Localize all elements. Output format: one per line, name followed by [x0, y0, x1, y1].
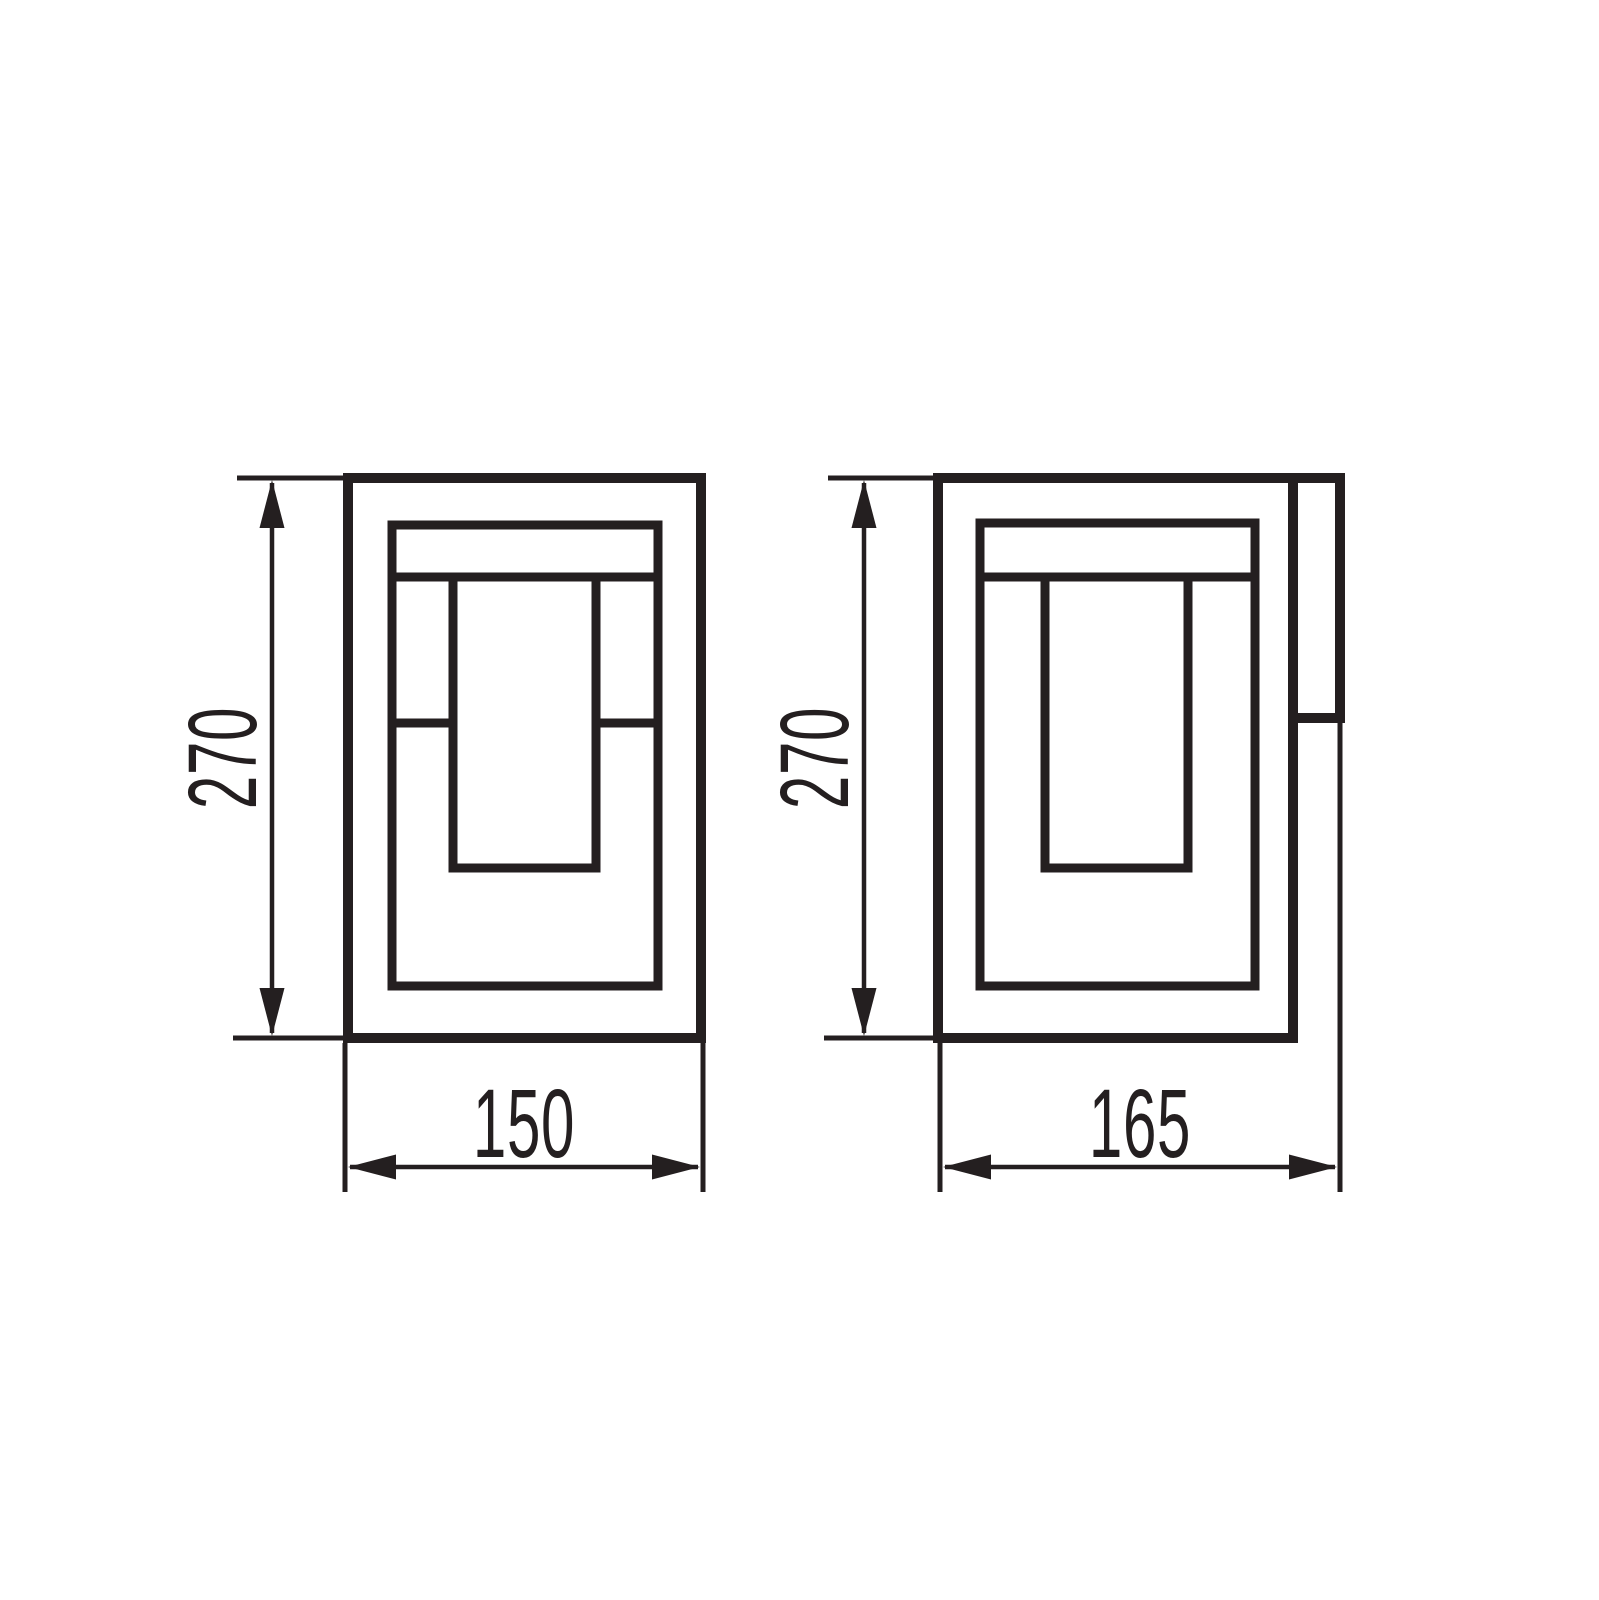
side-inner-frame — [980, 523, 1255, 986]
side-height-label: 270 — [761, 707, 869, 809]
front-height-arrow-up-icon — [260, 480, 285, 528]
technical-drawing-canvas: 270 150 270 165 — [0, 0, 1599, 1600]
side-height-arrow-down-icon — [852, 988, 877, 1036]
side-outer-frame — [938, 478, 1293, 1038]
front-inner-frame — [392, 525, 658, 986]
side-depth-label: 165 — [1089, 1070, 1191, 1178]
front-width-arrow-left-icon — [348, 1155, 396, 1180]
front-height-dimension: 270 — [169, 478, 353, 1038]
front-outer-frame — [348, 478, 701, 1038]
side-view — [938, 473, 1345, 1038]
front-view — [348, 478, 701, 1038]
side-height-arrow-up-icon — [852, 480, 877, 528]
side-depth-arrow-right-icon — [1289, 1155, 1337, 1180]
side-height-dimension: 270 — [761, 478, 944, 1038]
front-height-label: 270 — [169, 707, 277, 809]
drawing-page: 270 150 270 165 — [0, 0, 1599, 1600]
front-width-dimension: 150 — [345, 1043, 703, 1192]
side-depth-arrow-left-icon — [943, 1155, 991, 1180]
front-width-label: 150 — [473, 1070, 575, 1178]
front-height-arrow-down-icon — [260, 988, 285, 1036]
side-depth-dimension: 165 — [940, 723, 1340, 1192]
front-width-arrow-right-icon — [652, 1155, 700, 1180]
